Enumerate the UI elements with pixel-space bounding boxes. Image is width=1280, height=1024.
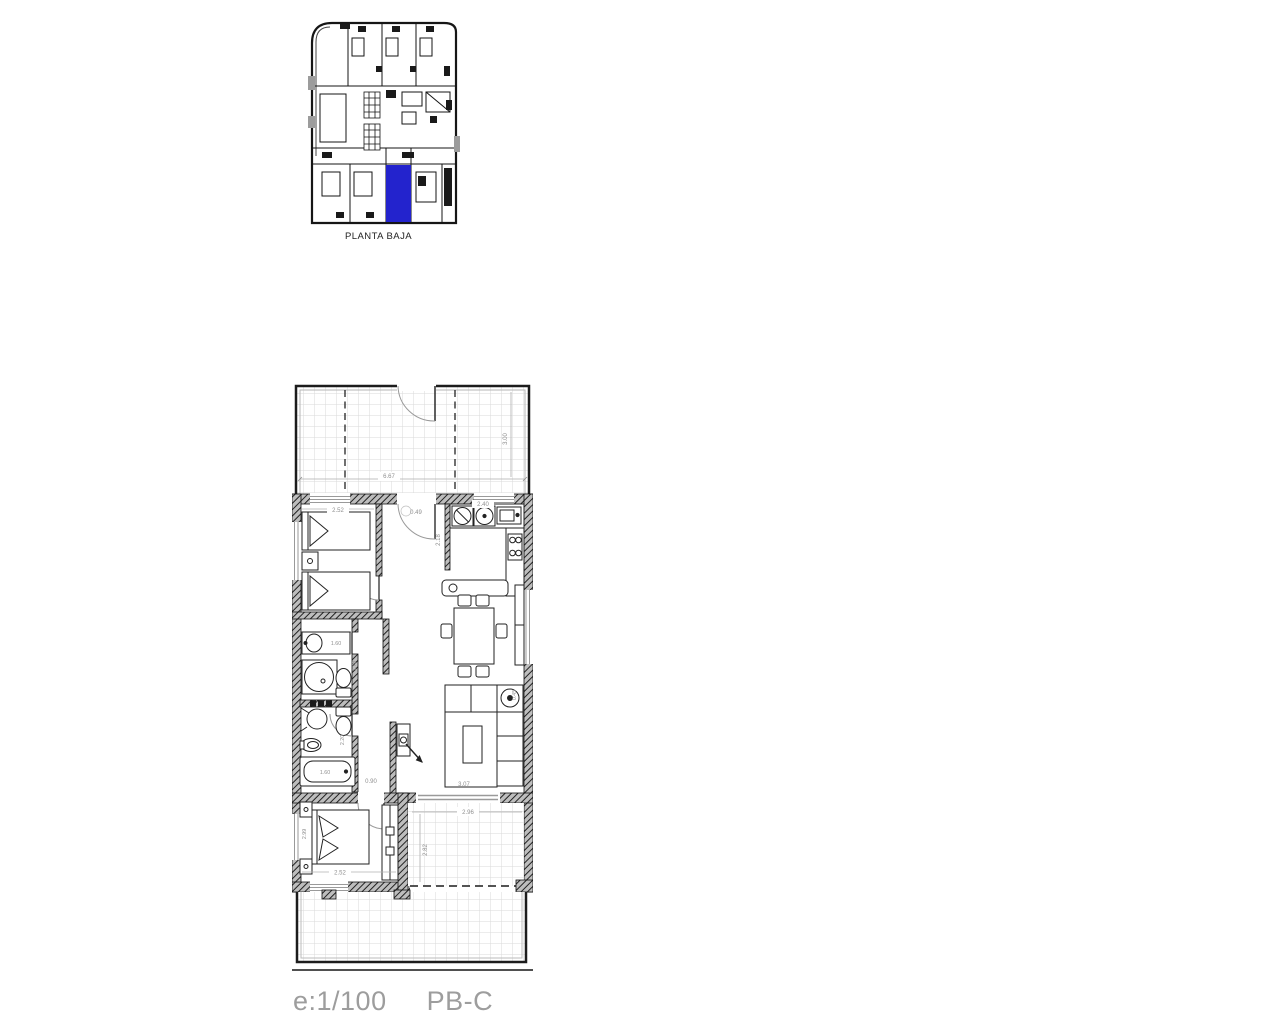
- bedroom1: 2.52: [302, 506, 374, 610]
- chair: [458, 666, 471, 677]
- bathroom1: 1.60 1.78: [302, 632, 358, 707]
- dim-bath1-vanity: 1.60: [331, 641, 341, 647]
- corner-sink: [307, 709, 327, 729]
- terrace-bottom: [297, 890, 526, 962]
- sofa-chaise: [497, 712, 523, 786]
- dim-bath2-depth: 2.20: [340, 735, 346, 745]
- terrace-top: 6.67 3.00: [296, 382, 529, 494]
- scale-label: e:1/100: [293, 986, 387, 1017]
- terrace2: 2.96 2.82: [408, 803, 533, 892]
- dim-terrace2-depth: 2.82: [423, 844, 429, 856]
- dim-kitchen-width: 2.40: [477, 502, 489, 508]
- laundry-icon: [318, 701, 324, 707]
- living: 3.07 0.45: [397, 685, 523, 788]
- dim-kitchen-depth: 2.18: [436, 534, 442, 546]
- highlighted-unit: [386, 165, 411, 222]
- dining: [441, 585, 524, 677]
- toilet: [336, 717, 351, 736]
- laundry-icon: [326, 701, 332, 707]
- coffee-table: [463, 726, 482, 763]
- washbasin: [306, 634, 322, 652]
- chair: [496, 624, 507, 638]
- dim-entry: 0.49: [410, 510, 422, 516]
- caption: e:1/100 PB-C: [293, 986, 493, 1017]
- dim-terrace-width: 6.67: [383, 474, 395, 480]
- chair: [476, 666, 489, 677]
- dining-table: [454, 608, 494, 664]
- dim-bathtub: 1.60: [320, 770, 330, 776]
- site-plan-figure: [306, 16, 462, 226]
- main-floor-plan-figure: 6.67 3.00: [292, 382, 533, 967]
- dim-terrace2-width: 2.96: [462, 810, 474, 816]
- unit-label: PB-C: [427, 986, 494, 1017]
- dim-bedroom2-depth: 2.99: [302, 829, 308, 839]
- dim-bedroom2-width: 2.52: [334, 871, 346, 877]
- page: PLANTA BAJA 6.67: [0, 0, 1280, 1024]
- bathroom2: 1.60 2.20: [300, 707, 355, 786]
- dim-bedroom1-width: 2.52: [332, 508, 344, 514]
- chair: [458, 595, 471, 606]
- dim-bath1-depth: 1.78: [352, 661, 358, 671]
- site-plan-label: PLANTA BAJA: [345, 231, 412, 242]
- dim-terrace-depth: 3.00: [503, 433, 509, 445]
- kitchen: 2.40: [442, 500, 524, 596]
- dim-hall-width: 0.90: [365, 779, 377, 785]
- dim-living-length: 3.07: [458, 782, 470, 788]
- bedroom2: 2.52 2.99: [300, 802, 398, 880]
- caption-rule: [292, 969, 533, 971]
- laundry-icon: [310, 701, 316, 707]
- dim-side-table: 0.45: [512, 690, 518, 700]
- toilet: [336, 669, 351, 688]
- chair: [441, 624, 452, 638]
- chair: [476, 595, 489, 606]
